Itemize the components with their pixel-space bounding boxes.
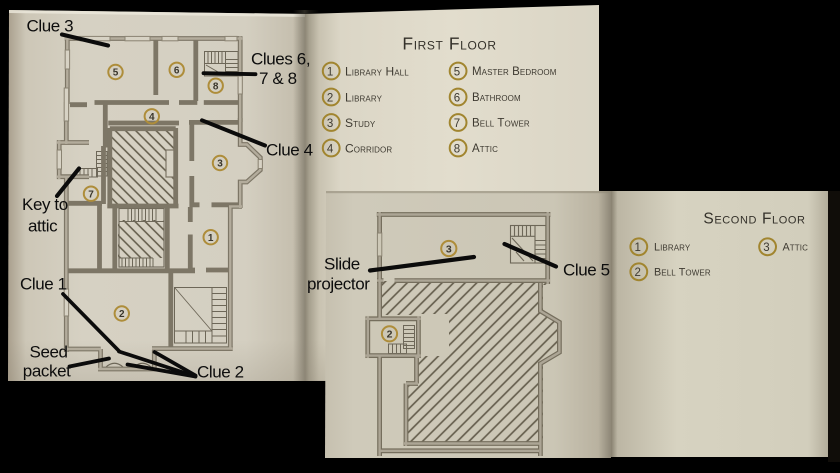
svg-text:projector: projector: [307, 275, 370, 294]
svg-text:2: 2: [387, 329, 393, 341]
svg-text:Bell Tower: Bell Tower: [654, 267, 711, 279]
svg-text:2: 2: [635, 267, 642, 279]
svg-text:packet: packet: [23, 362, 71, 381]
svg-text:Second Floor: Second Floor: [703, 211, 805, 228]
svg-text:Study: Study: [345, 116, 376, 130]
svg-text:Attic: Attic: [472, 143, 498, 155]
svg-text:7: 7: [88, 189, 94, 200]
svg-text:attic: attic: [28, 217, 58, 236]
svg-text:7: 7: [454, 118, 461, 130]
svg-text:Clue 4: Clue 4: [266, 141, 313, 160]
svg-text:Clue 3: Clue 3: [27, 16, 74, 35]
svg-text:8: 8: [213, 81, 219, 92]
svg-text:5: 5: [113, 68, 119, 79]
svg-text:Library: Library: [345, 90, 383, 104]
svg-text:5: 5: [454, 67, 461, 79]
svg-text:Corridor: Corridor: [345, 141, 392, 155]
svg-text:Key to: Key to: [22, 195, 68, 214]
svg-text:2: 2: [119, 309, 125, 320]
svg-text:8: 8: [454, 144, 461, 156]
svg-text:6: 6: [174, 65, 180, 76]
svg-text:First Floor: First Floor: [402, 34, 496, 54]
svg-text:1: 1: [327, 67, 334, 79]
svg-text:Library Hall: Library Hall: [345, 64, 409, 78]
svg-text:2: 2: [327, 93, 334, 105]
svg-text:3: 3: [217, 159, 223, 170]
svg-text:3: 3: [446, 243, 452, 255]
svg-text:Bell Tower: Bell Tower: [472, 118, 530, 130]
svg-text:Attic: Attic: [783, 242, 809, 254]
svg-text:Clue 2: Clue 2: [197, 363, 244, 382]
svg-text:Library: Library: [654, 242, 691, 254]
svg-text:6: 6: [454, 93, 461, 105]
svg-text:Clue 5: Clue 5: [563, 261, 610, 280]
svg-text:Clue 1: Clue 1: [20, 275, 67, 294]
svg-text:7 & 8: 7 & 8: [259, 69, 297, 88]
svg-text:4: 4: [149, 112, 155, 123]
svg-text:4: 4: [327, 144, 334, 156]
svg-text:Clues 6,: Clues 6,: [251, 50, 310, 69]
svg-text:1: 1: [635, 242, 642, 254]
svg-text:Slide: Slide: [324, 255, 360, 274]
svg-text:Seed: Seed: [30, 343, 68, 362]
svg-text:3: 3: [763, 242, 770, 254]
svg-text:3: 3: [327, 118, 334, 130]
svg-text:1: 1: [208, 233, 214, 244]
svg-text:Master Bedroom: Master Bedroom: [472, 66, 557, 78]
svg-text:Bathroom: Bathroom: [472, 92, 521, 104]
